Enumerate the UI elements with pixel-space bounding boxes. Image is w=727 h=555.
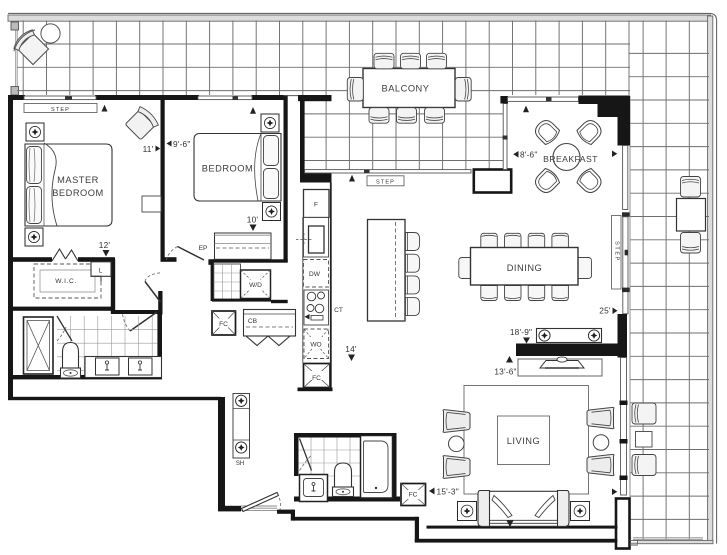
svg-text:LIVING: LIVING — [507, 436, 540, 446]
svg-text:18'-9": 18'-9" — [510, 327, 532, 337]
svg-text:CT: CT — [334, 307, 343, 314]
svg-text:12': 12' — [99, 240, 111, 250]
svg-text:W.I.C.: W.I.C. — [55, 278, 77, 285]
svg-text:15'-3": 15'-3" — [437, 487, 459, 497]
svg-text:W/D: W/D — [249, 282, 262, 289]
svg-text:10': 10' — [247, 215, 259, 225]
svg-text:FC: FC — [409, 492, 418, 499]
svg-text:FC: FC — [219, 321, 228, 328]
svg-text:BEDROOM: BEDROOM — [202, 164, 254, 174]
svg-text:BREAKFAST: BREAKFAST — [543, 154, 598, 164]
svg-text:SH: SH — [236, 461, 244, 467]
svg-text:F: F — [314, 202, 318, 209]
svg-text:MASTER: MASTER — [57, 175, 99, 185]
svg-text:9'-6": 9'-6" — [173, 139, 191, 149]
svg-text:EP: EP — [199, 245, 208, 252]
svg-text:25': 25' — [599, 306, 611, 316]
svg-text:WO: WO — [310, 342, 321, 349]
svg-text:14': 14' — [345, 344, 357, 354]
svg-text:STEP: STEP — [51, 107, 70, 113]
svg-text:L: L — [99, 268, 103, 275]
svg-text:DW: DW — [309, 271, 321, 278]
svg-text:STEP: STEP — [614, 241, 620, 262]
svg-text:13'-6": 13'-6" — [494, 367, 516, 377]
svg-text:8'-6": 8'-6" — [520, 150, 538, 160]
svg-text:STEP: STEP — [376, 179, 395, 185]
svg-text:11': 11' — [143, 144, 154, 154]
svg-text:DINING: DINING — [507, 263, 543, 273]
svg-text:CB: CB — [248, 318, 258, 325]
svg-text:BALCONY: BALCONY — [382, 84, 430, 94]
svg-text:FC: FC — [312, 375, 321, 382]
svg-text:BEDROOM: BEDROOM — [52, 188, 104, 198]
